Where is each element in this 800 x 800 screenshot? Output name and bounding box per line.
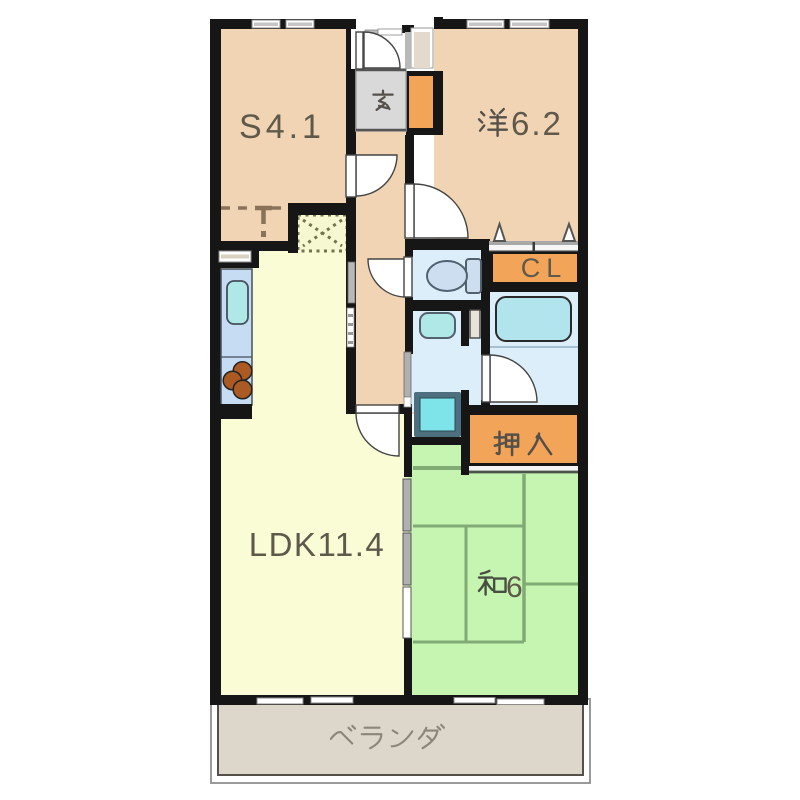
svg-text:LDK11.4: LDK11.4	[249, 526, 385, 563]
svg-text:6: 6	[506, 571, 523, 604]
svg-text:6.2: 6.2	[511, 105, 563, 142]
svg-text:S4.1: S4.1	[239, 108, 325, 146]
svg-text:CL: CL	[521, 253, 568, 283]
